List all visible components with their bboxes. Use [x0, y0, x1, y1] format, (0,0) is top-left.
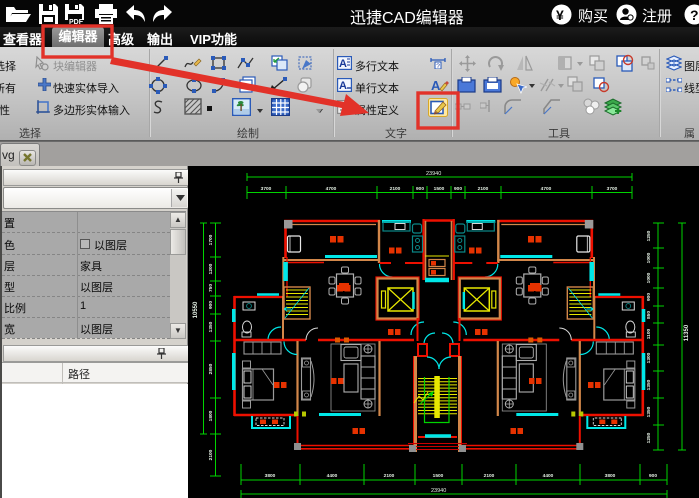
svg-text:1000: 1000 — [646, 252, 652, 263]
svg-text:2100: 2100 — [208, 449, 214, 460]
svg-text:1250: 1250 — [646, 230, 652, 241]
svg-text:2100: 2100 — [390, 186, 401, 192]
svg-text:1300: 1300 — [646, 352, 652, 363]
svg-text:A: A — [339, 80, 347, 92]
svg-text:750: 750 — [208, 284, 214, 292]
svg-text:4400: 4400 — [327, 473, 338, 479]
svg-text:3700: 3700 — [261, 186, 272, 192]
svg-text:1350: 1350 — [646, 379, 652, 390]
svg-text:2100: 2100 — [484, 473, 495, 479]
svg-text:900: 900 — [416, 186, 424, 192]
svg-text:900: 900 — [649, 473, 657, 479]
svg-text:1500: 1500 — [434, 186, 445, 192]
svg-text:2100: 2100 — [478, 186, 489, 192]
svg-text:23940: 23940 — [426, 171, 441, 177]
svg-text:11350: 11350 — [684, 324, 690, 341]
svg-text:?: ? — [436, 63, 440, 69]
svg-text:PDF: PDF — [69, 19, 84, 26]
svg-text:2850: 2850 — [208, 363, 214, 374]
svg-text:900: 900 — [646, 293, 652, 301]
svg-text:4400: 4400 — [543, 473, 554, 479]
svg-text:1350: 1350 — [208, 321, 214, 332]
svg-text:1700: 1700 — [208, 234, 214, 245]
svg-text:1800: 1800 — [208, 410, 214, 421]
svg-text:23940: 23940 — [431, 488, 446, 494]
svg-text:850: 850 — [646, 311, 652, 319]
svg-text:¥: ¥ — [556, 7, 564, 23]
svg-text:1100: 1100 — [646, 328, 652, 339]
svg-text:A: A — [431, 78, 441, 93]
svg-text:4700: 4700 — [541, 186, 552, 192]
svg-text:3800: 3800 — [265, 473, 276, 479]
svg-text:?: ? — [690, 7, 699, 23]
svg-text:1200: 1200 — [208, 263, 214, 274]
svg-text:4700: 4700 — [326, 186, 337, 192]
svg-text:1250: 1250 — [646, 432, 652, 443]
svg-text:900: 900 — [208, 301, 214, 309]
svg-text:1500: 1500 — [433, 473, 444, 479]
svg-text:1350: 1350 — [646, 406, 652, 417]
svg-text:2100: 2100 — [384, 473, 395, 479]
svg-text:3700: 3700 — [607, 186, 618, 192]
svg-text:900: 900 — [454, 186, 462, 192]
svg-text:A: A — [339, 58, 347, 70]
svg-text:10550: 10550 — [193, 301, 199, 318]
svg-text:3800: 3800 — [605, 473, 616, 479]
svg-text:1000: 1000 — [646, 272, 652, 283]
